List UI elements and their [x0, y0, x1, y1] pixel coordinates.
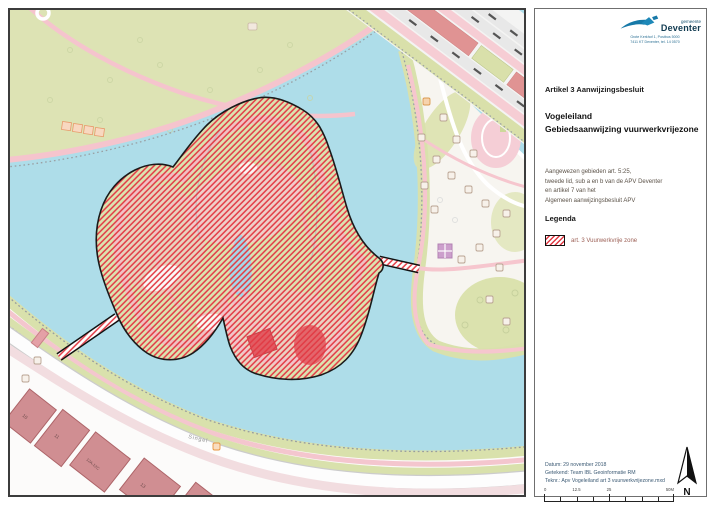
info-panel: gemeente Deventer Grote Kerkhof 1, Postb…	[534, 8, 707, 497]
map-graphic: 10 11 12A-12C 13 14 Singel	[10, 10, 524, 495]
footer-teknr: Teknr.: Apv Vogeleiland art 3 vuurwerkvr…	[545, 477, 665, 485]
document-subject: Vogeleiland Gebiedsaanwijzing vuurwerkvr…	[545, 110, 699, 136]
scale-label-25: 25	[607, 487, 612, 492]
gemeente-deventer-logo: gemeente Deventer Grote Kerkhof 1, Postb…	[609, 15, 701, 44]
legend-item-zone: art. 3 Vuurwerkvrije zone	[545, 235, 637, 246]
subject-line-2: Gebiedsaanwijzing vuurwerkvrijezone	[545, 123, 699, 136]
footer-datum: Datum: 29 november 2018	[545, 461, 665, 469]
legend-zone-swatch	[545, 235, 565, 246]
scale-label-50m: 50M	[666, 487, 674, 492]
legend-heading: Legenda	[545, 214, 576, 223]
subject-line-1: Vogeleiland	[545, 110, 699, 123]
north-label: N	[683, 487, 690, 497]
deventer-logo-icon	[619, 15, 659, 33]
scale-bar-line	[544, 493, 674, 502]
north-arrow-icon: N	[674, 445, 700, 497]
map-document-page: 10 11 12A-12C 13 14 Singel	[0, 0, 711, 508]
scale-label-0: 0	[544, 487, 546, 492]
map-footer-info: Datum: 29 november 2018 Getekend: Team I…	[545, 461, 665, 485]
scale-bar: 0 12.5 25 50M	[544, 487, 674, 504]
legend-zone-label: art. 3 Vuurwerkvrije zone	[571, 238, 637, 244]
scale-label-125: 12.5	[572, 487, 580, 492]
document-title: Artikel 3 Aanwijzingsbesluit	[545, 85, 644, 94]
building-purple	[438, 244, 452, 258]
logo-deventer-text: Deventer	[661, 24, 701, 33]
footer-getekend: Getekend: Team IBL Geoinformatie RM	[545, 469, 665, 477]
logo-address: Grote Kerkhof 1, Postbus 5000 7411 KT De…	[609, 35, 701, 44]
designation-text: Aangewezen gebieden art. 5:25, tweede li…	[545, 168, 662, 206]
map-canvas: 10 11 12A-12C 13 14 Singel	[8, 8, 526, 497]
